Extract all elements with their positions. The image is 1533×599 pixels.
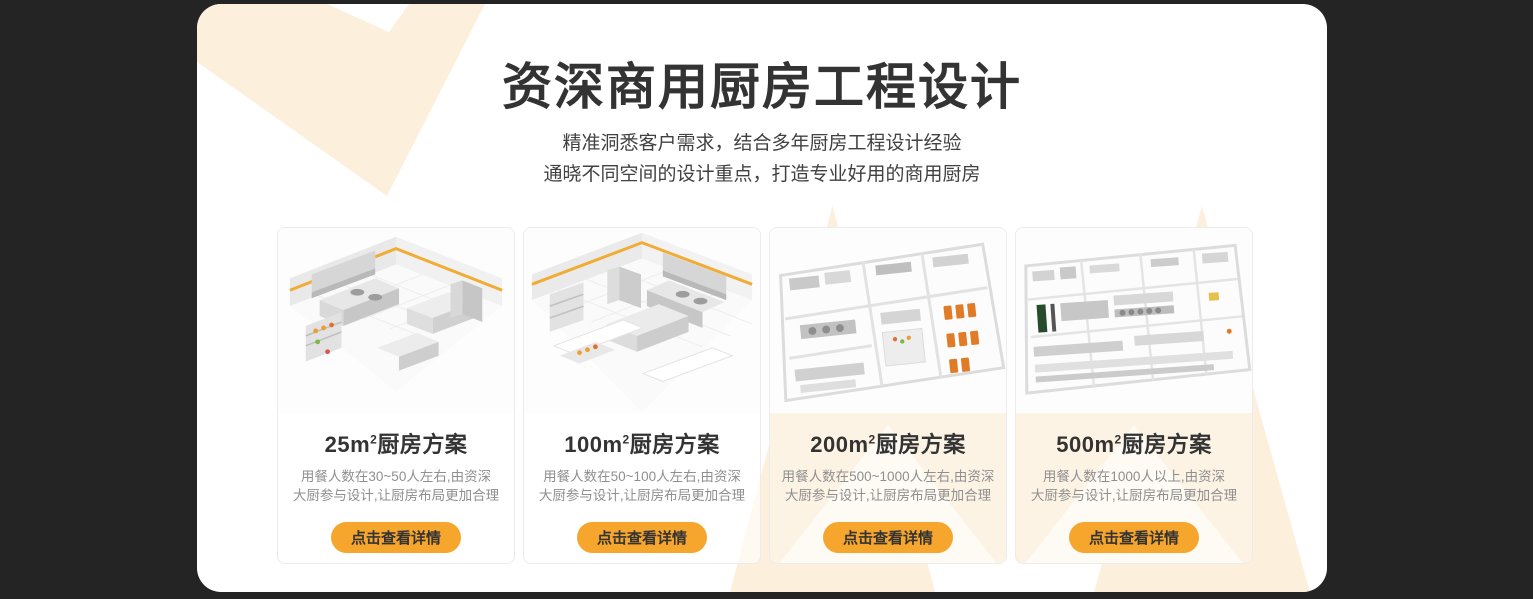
card-area-superscript: 2 bbox=[1115, 433, 1122, 447]
kitchen-isometric-illustration bbox=[524, 228, 760, 413]
card-description: 用餐人数在500~1000人左右,由资深 大厨参与设计,让厨房布局更加合理 bbox=[772, 467, 1004, 505]
content-panel: 资深商用厨房工程设计 精准洞悉客户需求，结合多年厨房工程设计经验 通晓不同空间的… bbox=[197, 4, 1327, 592]
card-area-value: 500m bbox=[1056, 432, 1114, 457]
view-details-button[interactable]: 点击查看详情 bbox=[331, 522, 461, 553]
kitchen-render-image-500m2 bbox=[1016, 228, 1252, 413]
card-description: 用餐人数在30~50人左右,由资深 大厨参与设计,让厨房布局更加合理 bbox=[280, 467, 512, 505]
kitchen-plan-card-200m2: 200m2厨房方案 用餐人数在500~1000人左右,由资深 大厨参与设计,让厨… bbox=[769, 227, 1007, 564]
kitchen-isometric-illustration bbox=[278, 228, 514, 413]
view-details-button[interactable]: 点击查看详情 bbox=[823, 522, 953, 553]
view-details-button[interactable]: 点击查看详情 bbox=[1069, 522, 1199, 553]
kitchen-plan-card-500m2: 500m2厨房方案 用餐人数在1000人以上,由资深 大厨参与设计,让厨房布局更… bbox=[1015, 227, 1253, 564]
card-area-value: 200m bbox=[810, 432, 868, 457]
card-area-superscript: 2 bbox=[869, 433, 876, 447]
card-body: 100m2厨房方案 用餐人数在50~100人左右,由资深 大厨参与设计,让厨房布… bbox=[524, 427, 760, 505]
card-title-suffix: 厨房方案 bbox=[876, 432, 966, 457]
card-title-suffix: 厨房方案 bbox=[630, 432, 720, 457]
card-body: 500m2厨房方案 用餐人数在1000人以上,由资深 大厨参与设计,让厨房布局更… bbox=[1016, 427, 1252, 505]
card-body: 200m2厨房方案 用餐人数在500~1000人左右,由资深 大厨参与设计,让厨… bbox=[770, 427, 1006, 505]
card-description: 用餐人数在50~100人左右,由资深 大厨参与设计,让厨房布局更加合理 bbox=[526, 467, 758, 505]
card-title: 100m2厨房方案 bbox=[526, 427, 758, 459]
card-title: 200m2厨房方案 bbox=[772, 427, 1004, 459]
kitchen-plan-cards-row: 25m2厨房方案 用餐人数在30~50人左右,由资深 大厨参与设计,让厨房布局更… bbox=[277, 227, 1253, 564]
card-area-superscript: 2 bbox=[623, 433, 630, 447]
card-title: 25m2厨房方案 bbox=[280, 427, 512, 459]
kitchen-render-image-25m2 bbox=[278, 228, 514, 413]
card-body: 25m2厨房方案 用餐人数在30~50人左右,由资深 大厨参与设计,让厨房布局更… bbox=[278, 427, 514, 505]
view-details-button[interactable]: 点击查看详情 bbox=[577, 522, 707, 553]
page-title: 资深商用厨房工程设计 bbox=[197, 60, 1327, 114]
kitchen-plan-card-100m2: 100m2厨房方案 用餐人数在50~100人左右,由资深 大厨参与设计,让厨房布… bbox=[523, 227, 761, 564]
card-title: 500m2厨房方案 bbox=[1018, 427, 1250, 459]
kitchen-plan-card-25m2: 25m2厨房方案 用餐人数在30~50人左右,由资深 大厨参与设计,让厨房布局更… bbox=[277, 227, 515, 564]
kitchen-render-image-100m2 bbox=[524, 228, 760, 413]
page-subtitle: 精准洞悉客户需求，结合多年厨房工程设计经验 通晓不同空间的设计重点，打造专业好用… bbox=[197, 128, 1327, 190]
card-area-value: 25m bbox=[325, 432, 371, 457]
subtitle-line-2: 通晓不同空间的设计重点，打造专业好用的商用厨房 bbox=[197, 159, 1327, 190]
page-background: 资深商用厨房工程设计 精准洞悉客户需求，结合多年厨房工程设计经验 通晓不同空间的… bbox=[0, 0, 1533, 599]
card-area-value: 100m bbox=[564, 432, 622, 457]
card-title-suffix: 厨房方案 bbox=[1122, 432, 1212, 457]
card-title-suffix: 厨房方案 bbox=[377, 432, 467, 457]
subtitle-line-1: 精准洞悉客户需求，结合多年厨房工程设计经验 bbox=[197, 128, 1327, 159]
card-description: 用餐人数在1000人以上,由资深 大厨参与设计,让厨房布局更加合理 bbox=[1018, 467, 1250, 505]
kitchen-render-image-200m2 bbox=[770, 228, 1006, 413]
kitchen-floorplan-illustration bbox=[770, 228, 1006, 413]
kitchen-floorplan-illustration bbox=[1016, 228, 1252, 413]
